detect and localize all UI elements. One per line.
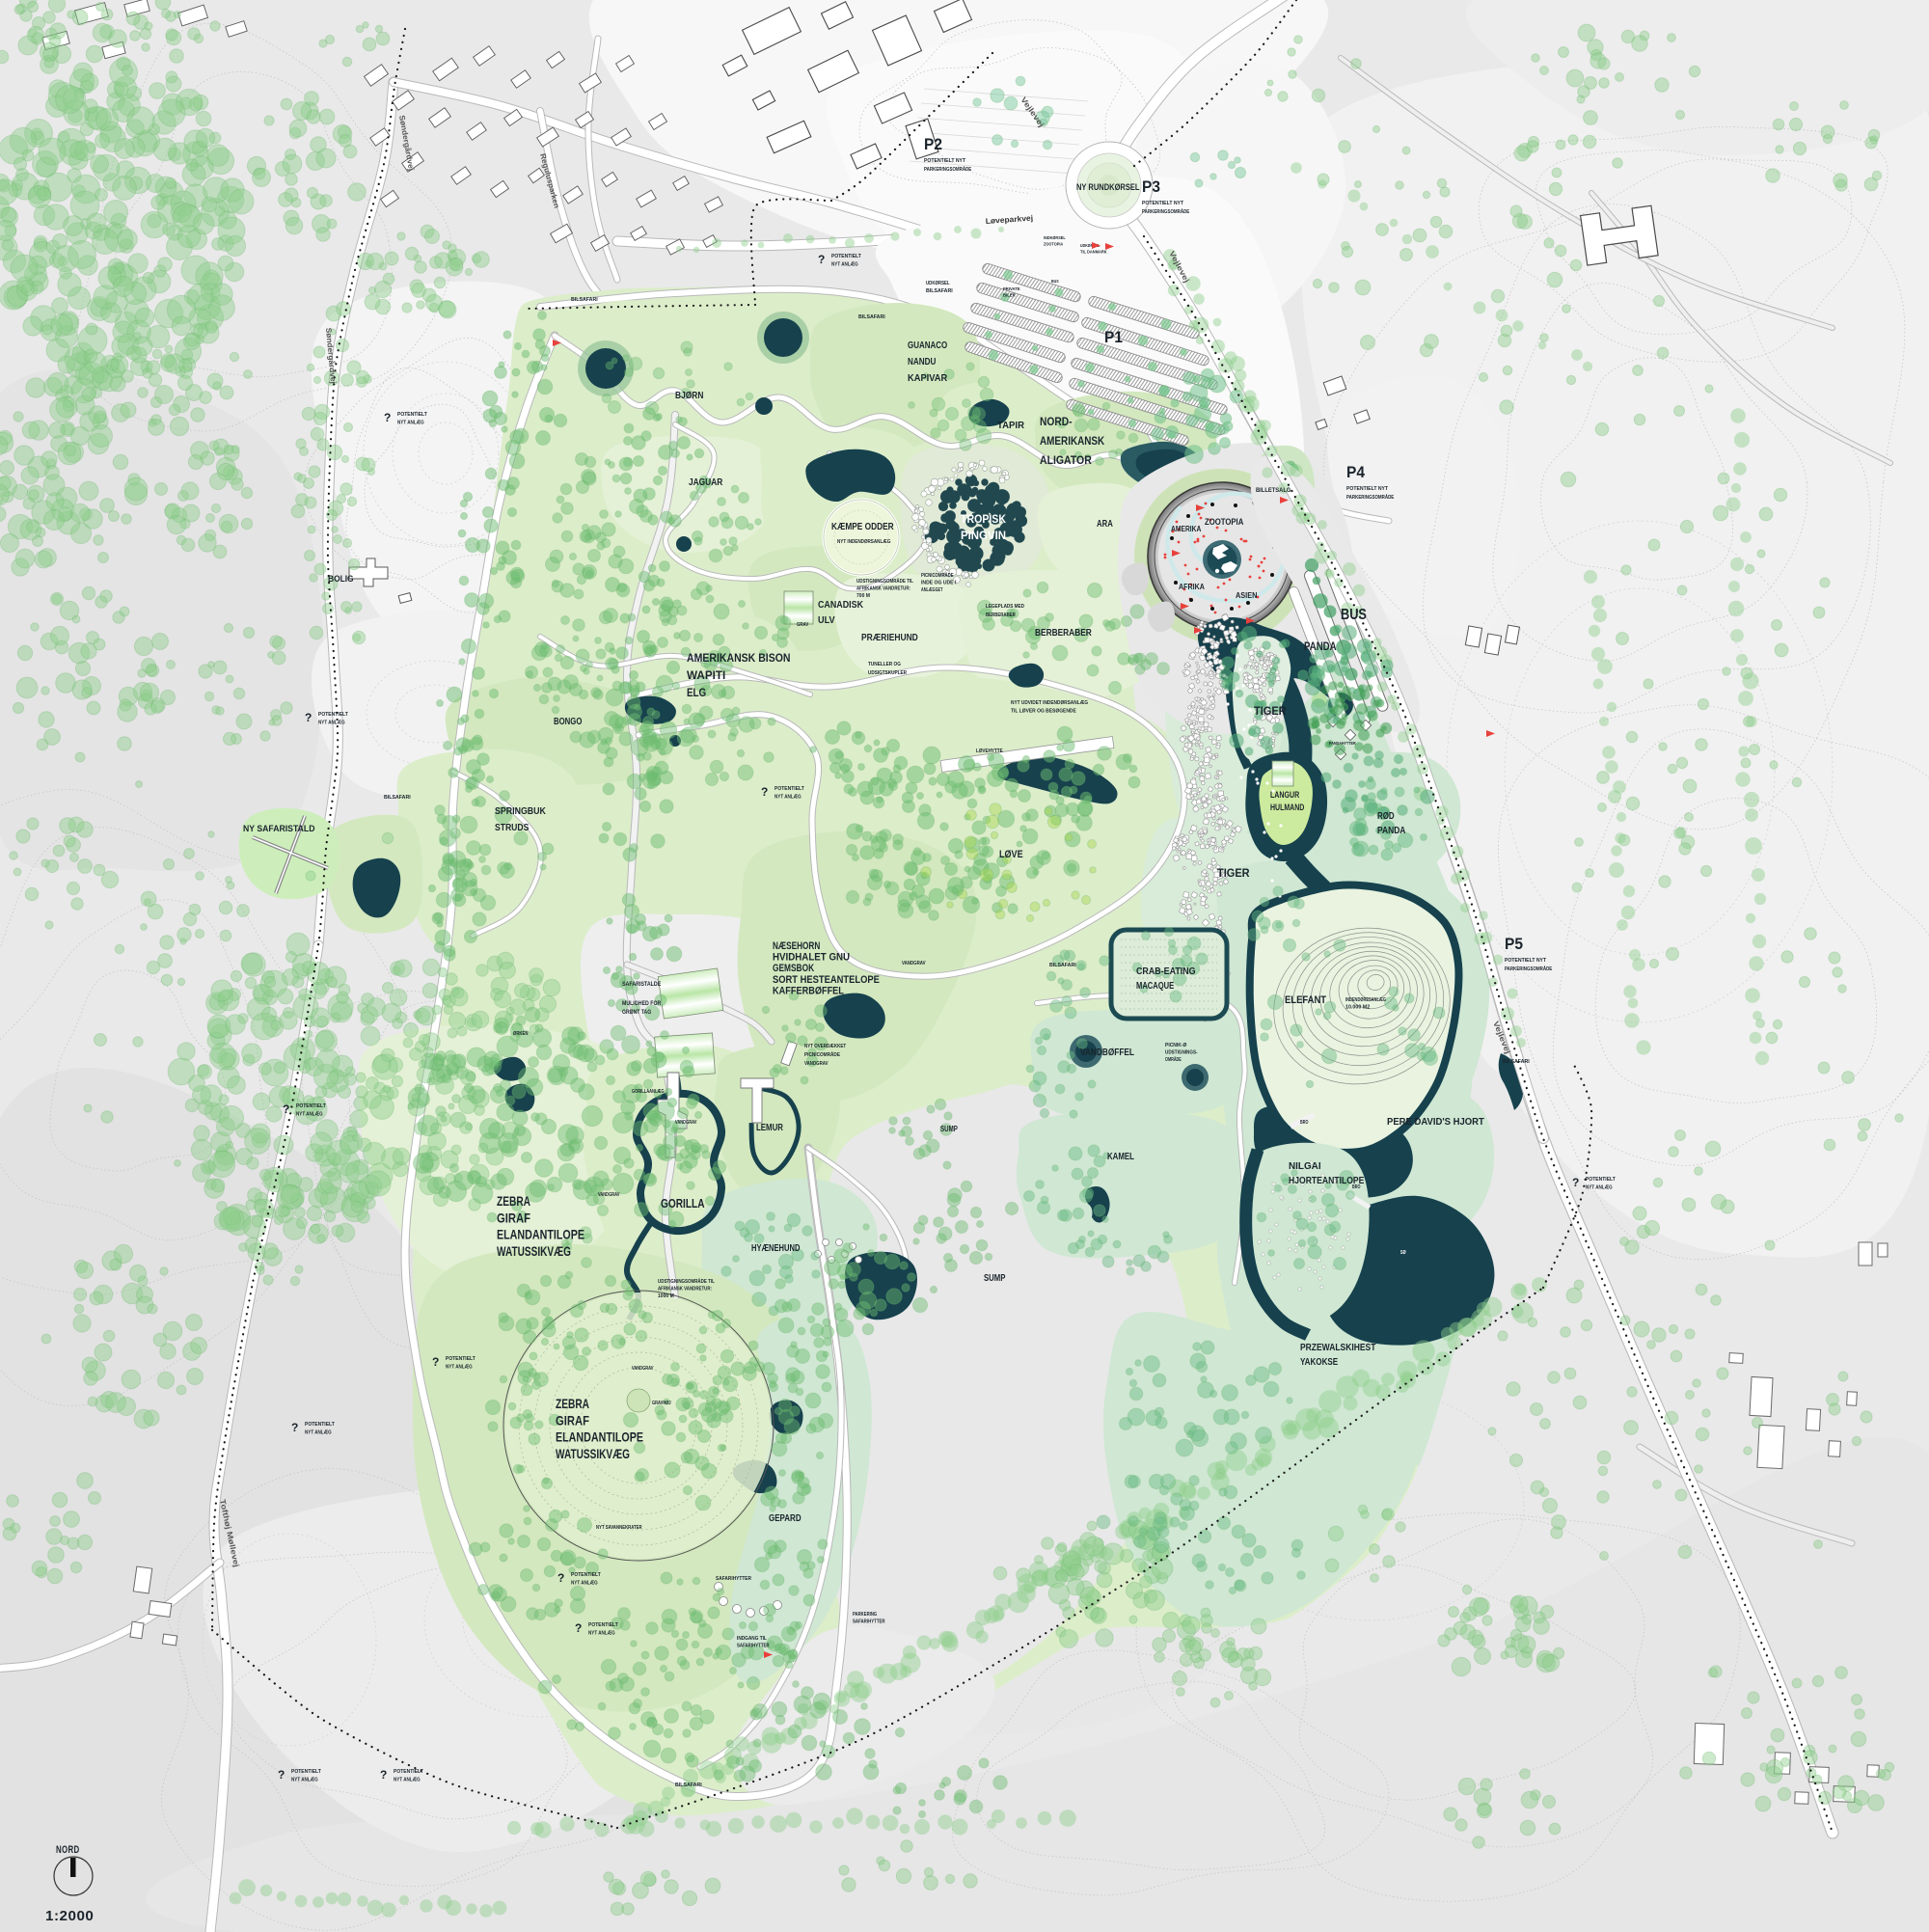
svg-text:POTENTIELT NYT: POTENTIELT NYT xyxy=(1505,958,1547,964)
svg-text:AFRIKA: AFRIKA xyxy=(1179,583,1205,591)
svg-text:TAPIR: TAPIR xyxy=(997,421,1025,431)
svg-text:POTENTIELT NYT: POTENTIELT NYT xyxy=(1142,201,1184,206)
svg-text:LEMUR: LEMUR xyxy=(756,1123,784,1133)
svg-text:BERBERABER: BERBERABER xyxy=(1035,627,1092,639)
svg-text:BUS: BUS xyxy=(1051,279,1059,284)
svg-text:PARKERINGSOMRÅDE: PARKERINGSOMRÅDE xyxy=(1142,208,1190,215)
svg-text:BILSAFARI: BILSAFARI xyxy=(384,795,411,801)
svg-text:?: ? xyxy=(575,1621,582,1635)
svg-text:VANDGRAV: VANDGRAV xyxy=(902,961,926,966)
svg-text:GEPARD: GEPARD xyxy=(769,1513,801,1524)
svg-text:?: ? xyxy=(818,253,825,266)
svg-text:TIGER: TIGER xyxy=(1254,704,1287,718)
svg-text:AMERIKA: AMERIKA xyxy=(1171,525,1202,533)
svg-text:P2: P2 xyxy=(924,135,942,153)
svg-text:ARA: ARA xyxy=(1097,519,1113,530)
svg-text:VANDBØFFEL: VANDBØFFEL xyxy=(1080,1048,1134,1058)
svg-text:PARKERINGSOMRÅDE: PARKERINGSOMRÅDE xyxy=(1505,966,1553,972)
svg-text:BONGO: BONGO xyxy=(554,716,582,727)
svg-text:POTENTIELT NYT: POTENTIELT NYT xyxy=(924,158,966,164)
svg-text:SAFARISTALDE: SAFARISTALDE xyxy=(622,982,661,988)
svg-text:PRÆRIEHUND: PRÆRIEHUND xyxy=(861,632,918,643)
svg-text:VANDGRAV: VANDGRAV xyxy=(632,1366,654,1372)
svg-text:ZOOTOPIA: ZOOTOPIA xyxy=(1205,517,1244,527)
svg-text:TIGER: TIGER xyxy=(1217,866,1250,880)
svg-text:NYT INDENDØRSANLÆG: NYT INDENDØRSANLÆG xyxy=(837,539,890,545)
svg-text:BILLETSALG: BILLETSALG xyxy=(1256,487,1291,494)
svg-text:PANDA: PANDA xyxy=(1304,639,1337,653)
svg-text:BILSAFARI: BILSAFARI xyxy=(1503,1059,1530,1065)
svg-text:BILSAFARI: BILSAFARI xyxy=(571,297,598,303)
svg-text:PERE DAVID'S HJORT: PERE DAVID'S HJORT xyxy=(1387,1117,1484,1128)
svg-text:?: ? xyxy=(283,1102,289,1116)
svg-text:BOLIG: BOLIG xyxy=(328,574,354,585)
svg-text:?: ? xyxy=(291,1421,298,1434)
svg-text:NY RUNDKØRSEL: NY RUNDKØRSEL xyxy=(1076,182,1140,192)
svg-text:BILSAFARI: BILSAFARI xyxy=(858,314,885,320)
svg-text:GORILLA: GORILLA xyxy=(661,1196,705,1211)
svg-text:JAGUAR: JAGUAR xyxy=(689,476,723,488)
svg-text:SØ: SØ xyxy=(1400,1250,1406,1256)
svg-text:BUS: BUS xyxy=(1341,607,1367,623)
svg-text:VANDGRAV: VANDGRAV xyxy=(675,1120,697,1126)
svg-text:KAMEL: KAMEL xyxy=(1107,1152,1134,1162)
svg-text:HYÆNEHUND: HYÆNEHUND xyxy=(751,1243,800,1254)
svg-text:ASIEN: ASIEN xyxy=(1236,591,1258,600)
svg-text:P4: P4 xyxy=(1346,463,1365,481)
svg-text:PARKERINGSOMRÅDE: PARKERINGSOMRÅDE xyxy=(924,166,972,173)
svg-text:P1: P1 xyxy=(1104,328,1123,346)
svg-text:ELEFANT: ELEFANT xyxy=(1285,994,1326,1006)
svg-text:BILSAFARI: BILSAFARI xyxy=(1049,963,1076,968)
svg-text:?: ? xyxy=(384,411,391,424)
svg-text:LØVEHYTTE: LØVEHYTTE xyxy=(976,748,1003,754)
svg-text:ØRKEN: ØRKEN xyxy=(513,1031,528,1037)
svg-text:VANDGRAV: VANDGRAV xyxy=(598,1192,620,1198)
svg-text:INDKØRSELZOOTOPIA: INDKØRSELZOOTOPIA xyxy=(1044,235,1066,247)
svg-text:?: ? xyxy=(432,1355,439,1369)
svg-text:P3: P3 xyxy=(1142,177,1160,196)
svg-text:BJØRN: BJØRN xyxy=(675,390,703,401)
svg-text:GORILLAANLÆG: GORILLAANLÆG xyxy=(632,1089,665,1095)
svg-text:SUMP: SUMP xyxy=(984,1273,1006,1284)
svg-text:INDGANG TILSAFARIHYTTER: INDGANG TILSAFARIHYTTER xyxy=(737,1636,770,1649)
svg-text:?: ? xyxy=(761,785,768,799)
svg-text:PANDAHYTTER: PANDAHYTTER xyxy=(1329,741,1356,746)
svg-text:BRO: BRO xyxy=(1352,1184,1360,1190)
svg-text:NYT SAVANNEKRATER: NYT SAVANNEKRATER xyxy=(596,1525,642,1531)
svg-text:GRAV: GRAV xyxy=(797,622,809,628)
svg-text:P5: P5 xyxy=(1505,935,1523,953)
svg-text:KÆMPE ODDER: KÆMPE ODDER xyxy=(831,521,894,532)
svg-text:BILSAFARI: BILSAFARI xyxy=(675,1782,702,1788)
svg-text:GRAVHØJ: GRAVHØJ xyxy=(652,1401,671,1406)
svg-text:?: ? xyxy=(305,711,312,724)
svg-text:LØVE: LØVE xyxy=(999,849,1023,860)
svg-text:POTENTIELT NYT: POTENTIELT NYT xyxy=(1346,486,1389,492)
svg-text:SAFARIHYTTER: SAFARIHYTTER xyxy=(716,1576,751,1582)
svg-text:NY SAFARISTALD: NY SAFARISTALD xyxy=(243,824,315,834)
svg-text:BRO: BRO xyxy=(1300,1120,1308,1126)
svg-text:SUMP: SUMP xyxy=(940,1125,958,1133)
svg-text:PARKERINGSOMRÅDE: PARKERINGSOMRÅDE xyxy=(1346,494,1395,501)
